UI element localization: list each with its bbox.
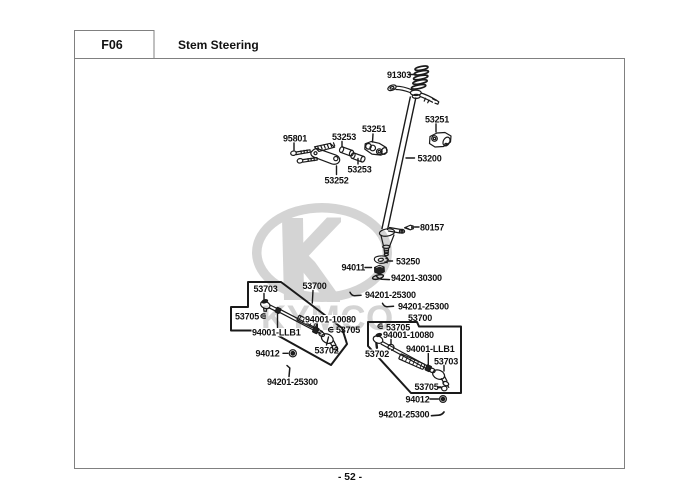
svg-text:94012: 94012 [256,349,280,359]
svg-text:53705: 53705 [415,382,439,392]
svg-text:53702: 53702 [365,349,389,359]
svg-text:53252: 53252 [325,176,349,186]
svg-text:53250: 53250 [396,257,420,267]
svg-text:53253: 53253 [348,165,372,175]
svg-text:95801: 95801 [283,134,307,144]
svg-text:53703: 53703 [254,284,278,294]
svg-text:53200: 53200 [418,154,442,164]
svg-text:94201-25300: 94201-25300 [267,377,318,387]
svg-text:- 52 -: - 52 - [338,472,363,483]
svg-text:80157: 80157 [420,223,444,233]
svg-text:53251: 53251 [425,115,449,125]
svg-text:94201-25300: 94201-25300 [379,410,430,420]
svg-text:94201-25300: 94201-25300 [398,302,449,312]
svg-text:53700: 53700 [408,313,432,323]
svg-text:94001-10080: 94001-10080 [383,330,434,340]
svg-text:94001-LLB1: 94001-LLB1 [252,328,301,338]
svg-text:94011: 94011 [342,263,366,273]
svg-text:94012: 94012 [406,395,430,405]
svg-text:94201-25300: 94201-25300 [365,290,416,300]
svg-text:94001-LLB1: 94001-LLB1 [406,344,455,354]
svg-text:53705: 53705 [336,325,360,335]
svg-text:F06: F06 [101,38,123,52]
svg-text:53702: 53702 [315,346,339,356]
svg-text:Stem Steering: Stem Steering [178,38,259,52]
svg-text:53251: 53251 [362,124,386,134]
svg-text:53703: 53703 [434,357,458,367]
svg-text:53253: 53253 [332,132,356,142]
svg-text:94001-10080: 94001-10080 [305,315,356,325]
svg-text:91303: 91303 [387,70,411,80]
svg-text:53700: 53700 [303,281,327,291]
svg-text:53705: 53705 [235,312,259,322]
svg-text:94201-30300: 94201-30300 [391,273,442,283]
